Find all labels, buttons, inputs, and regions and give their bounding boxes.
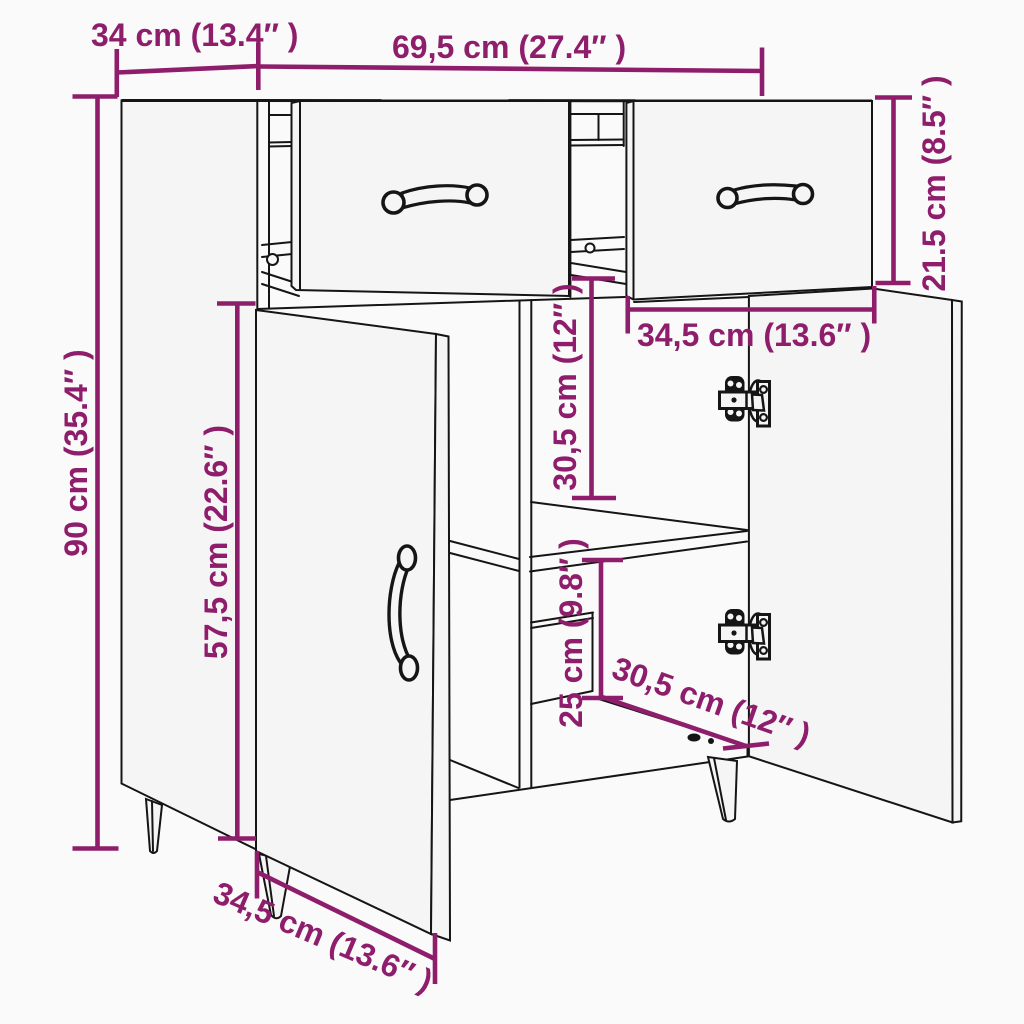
svg-text:90 cm (35.4″ ): 90 cm (35.4″ ) (58, 349, 94, 556)
svg-text:57,5 cm (22.6″ ): 57,5 cm (22.6″ ) (198, 425, 234, 659)
svg-text:34 cm (13.4″ ): 34 cm (13.4″ ) (91, 17, 298, 53)
svg-text:30,5 cm (12″ ): 30,5 cm (12″ ) (547, 283, 583, 490)
svg-text:34,5 cm (13.6″ ): 34,5 cm (13.6″ ) (637, 317, 871, 353)
svg-text:25 cm (9.8″ ): 25 cm (9.8″ ) (553, 538, 589, 728)
svg-text:21.5 cm (8.5″ ): 21.5 cm (8.5″ ) (916, 75, 952, 291)
svg-text:69,5 cm (27.4″ ): 69,5 cm (27.4″ ) (392, 29, 626, 65)
